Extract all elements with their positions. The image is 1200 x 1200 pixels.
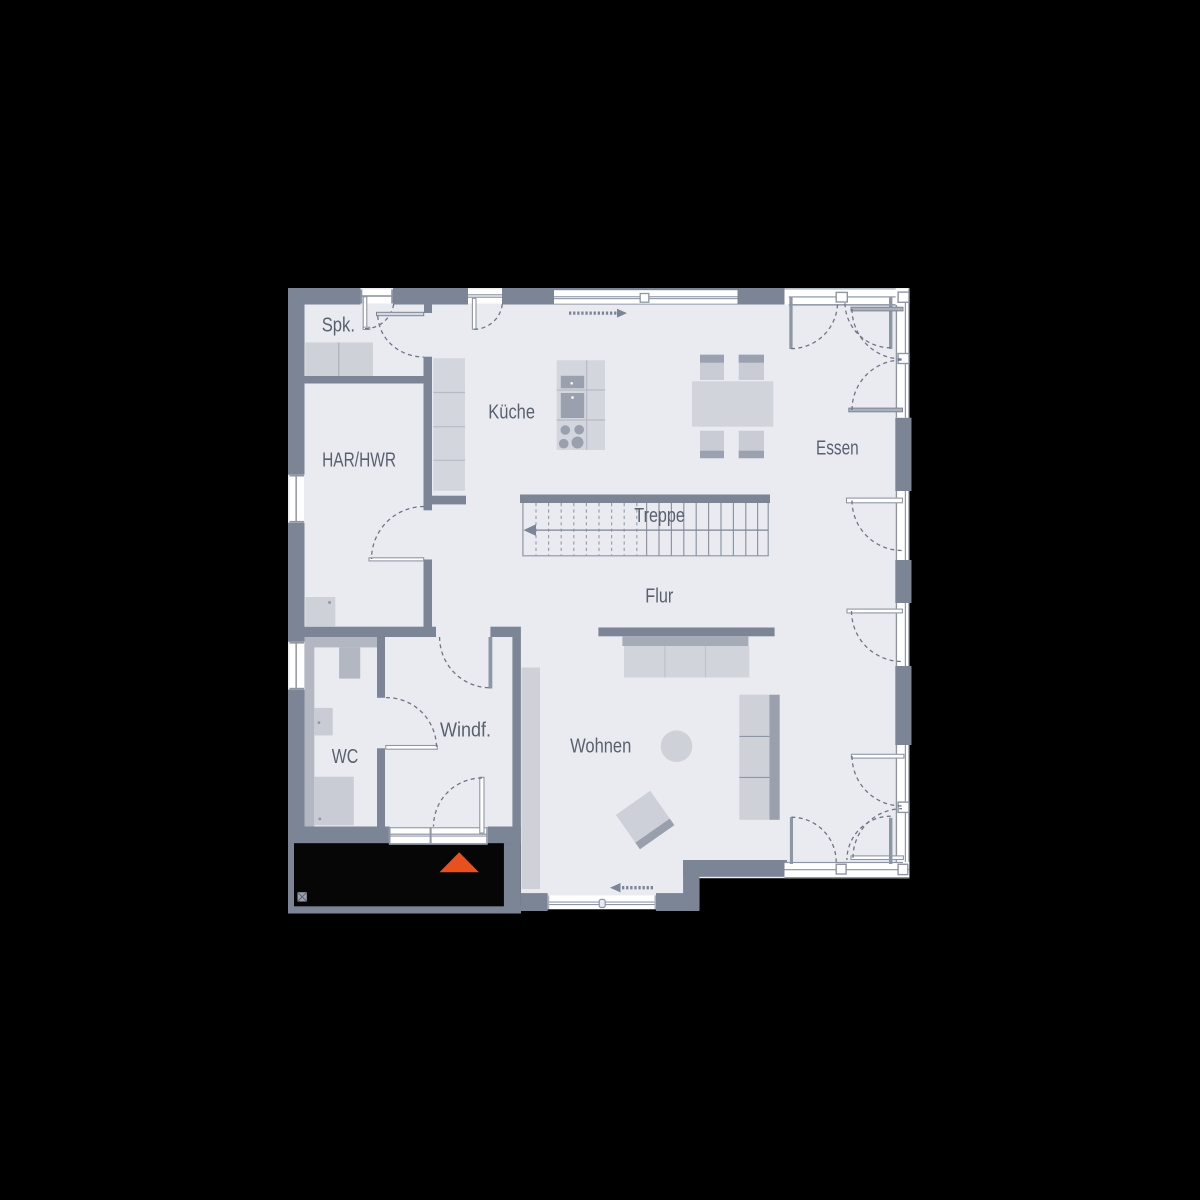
svg-text:Spk.: Spk.	[322, 314, 355, 337]
svg-text:Windf.: Windf.	[440, 719, 491, 742]
svg-text:WC: WC	[332, 745, 359, 768]
svg-text:Treppe: Treppe	[634, 504, 685, 527]
svg-text:HAR/HWR: HAR/HWR	[322, 448, 396, 471]
svg-text:Flur: Flur	[645, 585, 673, 608]
svg-text:Küche: Küche	[488, 401, 535, 424]
svg-text:Wohnen: Wohnen	[570, 735, 631, 758]
svg-text:Essen: Essen	[816, 437, 859, 460]
